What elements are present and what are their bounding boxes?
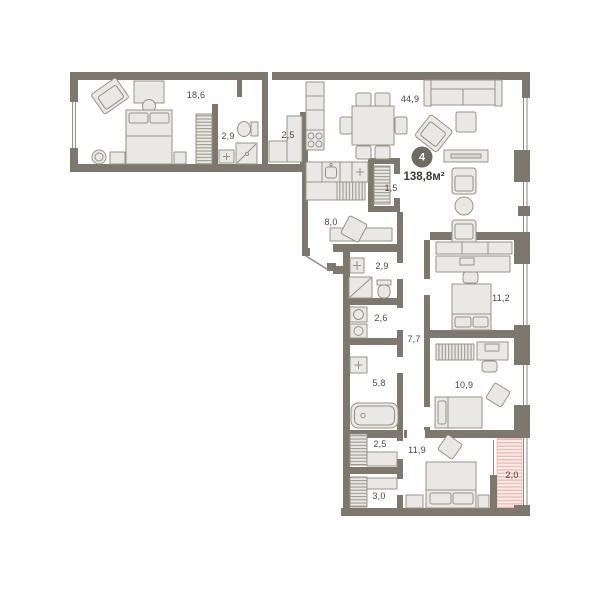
pouf-icon	[437, 434, 462, 459]
room-area-label-bedroom-2: 11,2	[492, 293, 510, 303]
kitchen-sink-icon	[322, 162, 340, 182]
room-area-label-wardrobe-lower-2: 3,0	[372, 491, 385, 501]
room-area-label-kitchen-living: 44,9	[401, 94, 419, 104]
room-area-label-corridor: 7,7	[407, 334, 420, 344]
shelf-icon	[367, 478, 397, 489]
room-area-label-bedroom-4: 11,9	[408, 445, 426, 455]
nightstand-icon	[110, 152, 125, 164]
room-area-label-bedroom-3: 10,9	[455, 380, 473, 390]
stove-icon	[306, 130, 324, 150]
washbasin-icon	[350, 357, 367, 373]
toilet-icon	[238, 122, 259, 137]
kitchen-counter-icon	[306, 182, 337, 200]
kitchen-counter-icon	[306, 162, 322, 182]
tv-console-icon	[444, 150, 488, 162]
washing-machine-icon	[350, 307, 367, 322]
armchair-icon	[452, 168, 476, 194]
dryer-icon	[350, 324, 367, 338]
room-area-label-bathroom-middle: 2,9	[375, 261, 388, 271]
shower-icon	[349, 277, 372, 298]
toilet-icon	[377, 280, 391, 298]
shelf-icon	[367, 452, 397, 466]
shower-icon	[236, 143, 257, 164]
bathtub-icon	[351, 403, 398, 428]
nightstand-icon	[478, 495, 489, 508]
dishwasher-icon	[352, 162, 368, 182]
washbasin-icon	[350, 258, 364, 273]
double-bed-icon	[452, 284, 491, 330]
round-table-icon	[455, 197, 473, 215]
single-bed-icon	[435, 397, 482, 428]
sofa-icon	[424, 80, 502, 106]
shelf-icon	[269, 141, 287, 162]
room-area-label-hallway: 8,0	[324, 217, 337, 227]
dish-rack-icon	[337, 182, 365, 200]
desk-icon	[477, 342, 508, 372]
floor-plan-canvas: 18,6 2,9 2,5 44,9 1,5 8,0 2,9 2,6 7,7 5,…	[0, 0, 600, 593]
nightstand-icon	[174, 152, 186, 164]
dresser-icon	[436, 344, 474, 360]
armchair-icon	[91, 78, 129, 115]
wardrobe-icon	[350, 477, 367, 507]
stool-icon	[92, 150, 106, 164]
ottoman-icon	[456, 112, 476, 132]
double-bed-icon	[426, 462, 476, 508]
entrance-door-icon	[306, 256, 330, 271]
washbasin-icon	[219, 150, 234, 163]
wardrobe-icon	[350, 434, 367, 465]
wardrobe-icon	[196, 114, 212, 164]
room-area-label-bathroom-lower: 5,8	[372, 378, 385, 388]
room-area-label-wardrobe-top: 2,5	[281, 130, 294, 140]
room-area-label-wardrobe-lower-1: 2,5	[373, 439, 386, 449]
furniture	[91, 78, 512, 508]
kitchen-cabinet-icon	[306, 110, 324, 130]
rooms-count-badge: 4	[412, 147, 433, 168]
dining-table-icon	[340, 93, 407, 159]
floor-plan-drawing	[0, 0, 600, 593]
total-area-label: 138,8м²	[403, 171, 444, 183]
room-area-label-balcony: 2,0	[505, 470, 518, 480]
room-area-label-bathroom-top: 2,9	[221, 131, 234, 141]
fridge-icon	[306, 82, 324, 110]
wardrobe-row-icon	[436, 242, 512, 254]
nightstand-icon	[406, 495, 423, 508]
room-area-label-bedroom-master: 18,6	[187, 90, 205, 100]
kitchen-counter-icon	[340, 162, 352, 182]
pouf-icon	[486, 383, 511, 408]
desk-icon	[436, 256, 510, 283]
room-area-label-laundry: 2,6	[374, 313, 387, 323]
room-area-label-hall-wardrobe: 1,5	[384, 183, 397, 193]
double-bed-icon	[126, 110, 172, 164]
desk-icon	[134, 81, 164, 113]
